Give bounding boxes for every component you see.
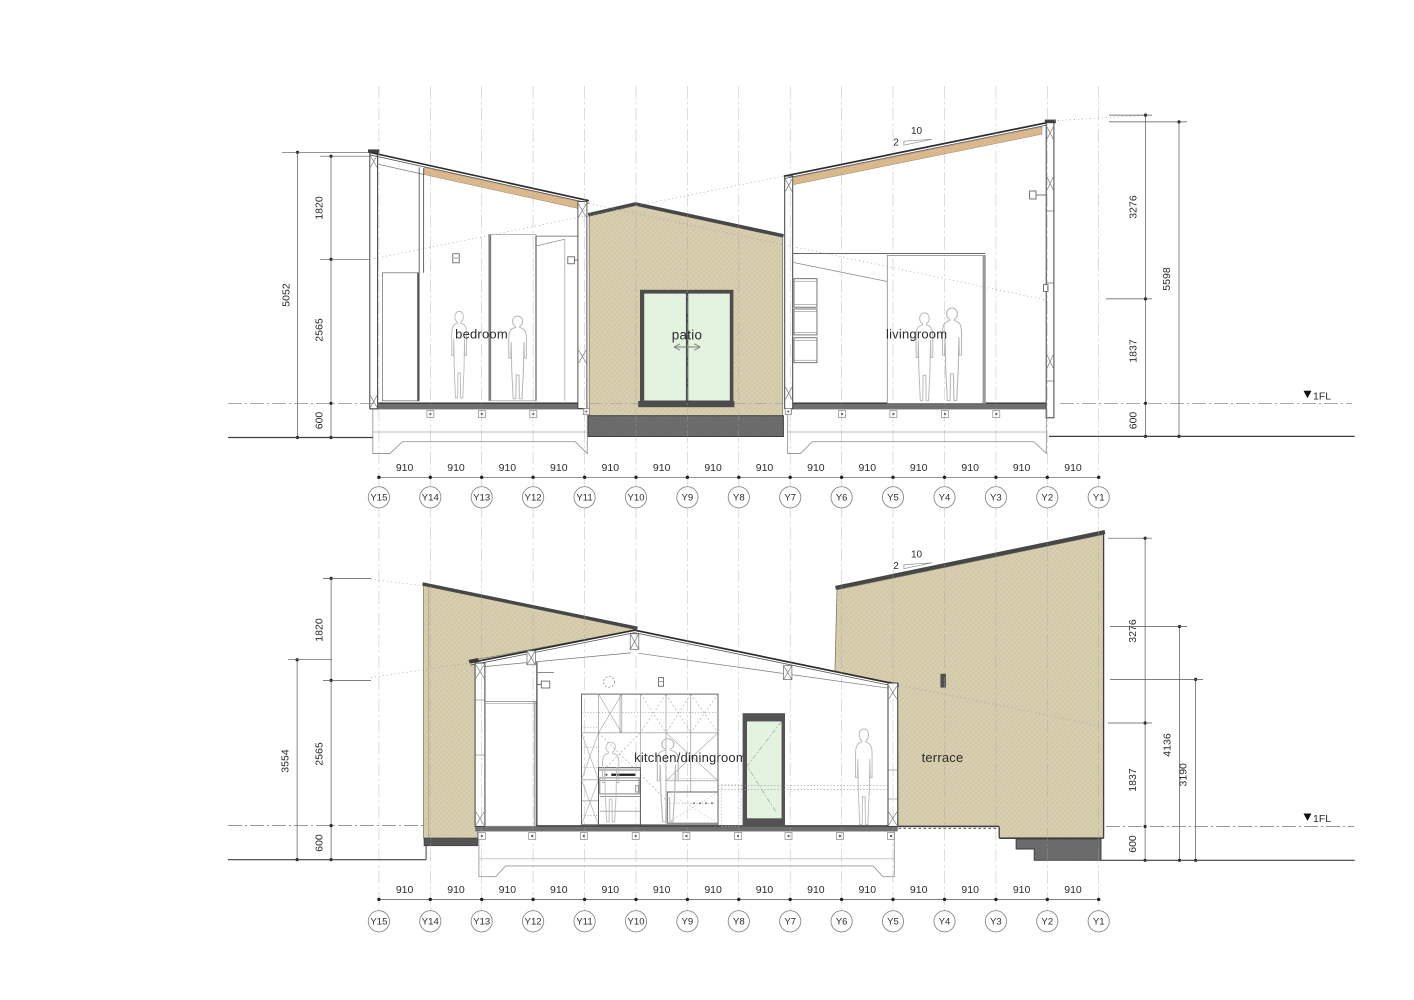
svg-text:910: 910 [653, 462, 671, 474]
svg-text:livingroom: livingroom [886, 327, 947, 342]
svg-text:1837: 1837 [1128, 339, 1140, 363]
svg-text:910: 910 [447, 462, 465, 474]
svg-text:Y12: Y12 [525, 917, 542, 928]
svg-text:Y3: Y3 [990, 493, 1002, 504]
svg-text:Y8: Y8 [733, 917, 745, 928]
svg-text:5598: 5598 [1161, 267, 1173, 291]
svg-text:1FL: 1FL [1313, 813, 1331, 825]
svg-text:Y6: Y6 [836, 917, 848, 928]
svg-text:2565: 2565 [313, 742, 325, 766]
svg-text:910: 910 [1013, 462, 1031, 474]
svg-text:910: 910 [910, 462, 928, 474]
svg-text:910: 910 [1013, 884, 1031, 896]
svg-text:600: 600 [1127, 835, 1139, 853]
svg-text:1FL: 1FL [1313, 390, 1331, 402]
svg-text:910: 910 [807, 884, 825, 896]
svg-text:kitchen/diningroom: kitchen/diningroom [634, 750, 747, 765]
svg-text:5052: 5052 [281, 283, 293, 307]
svg-text:3554: 3554 [280, 749, 292, 773]
svg-text:terrace: terrace [922, 750, 964, 765]
svg-text:910: 910 [602, 884, 620, 896]
svg-text:Y9: Y9 [682, 917, 694, 928]
svg-text:Y2: Y2 [1041, 493, 1053, 504]
svg-text:600: 600 [1128, 412, 1140, 430]
svg-text:10: 10 [911, 550, 923, 561]
svg-text:1820: 1820 [314, 196, 326, 220]
svg-text:Y8: Y8 [733, 493, 745, 504]
svg-text:Y13: Y13 [473, 493, 490, 504]
svg-text:910: 910 [396, 462, 414, 474]
svg-text:910: 910 [859, 884, 877, 896]
svg-text:10: 10 [911, 126, 923, 137]
svg-text:910: 910 [550, 462, 568, 474]
svg-text:600: 600 [313, 834, 325, 852]
svg-text:910: 910 [756, 462, 774, 474]
svg-text:Y13: Y13 [473, 917, 490, 928]
svg-text:910: 910 [756, 884, 774, 896]
svg-text:Y4: Y4 [939, 917, 951, 928]
svg-text:910: 910 [910, 884, 928, 896]
svg-text:910: 910 [1064, 462, 1082, 474]
svg-text:Y7: Y7 [784, 493, 796, 504]
svg-text:Y12: Y12 [525, 493, 542, 504]
svg-text:910: 910 [961, 884, 979, 896]
svg-text:Y11: Y11 [576, 917, 592, 928]
svg-text:910: 910 [1064, 884, 1082, 896]
svg-text:patio: patio [672, 327, 703, 342]
svg-text:Y10: Y10 [627, 917, 644, 928]
svg-text:Y2: Y2 [1041, 917, 1053, 928]
svg-text:910: 910 [961, 462, 979, 474]
svg-text:2: 2 [893, 561, 899, 572]
svg-text:Y4: Y4 [939, 493, 951, 504]
svg-text:910: 910 [807, 462, 825, 474]
svg-text:Y15: Y15 [370, 493, 387, 504]
svg-text:Y14: Y14 [422, 917, 440, 928]
svg-text:1837: 1837 [1127, 768, 1139, 792]
svg-text:Y3: Y3 [990, 917, 1002, 928]
svg-text:Y5: Y5 [887, 917, 899, 928]
svg-text:910: 910 [396, 884, 414, 896]
svg-text:3276: 3276 [1128, 195, 1140, 219]
svg-text:Y11: Y11 [576, 493, 592, 504]
svg-text:2: 2 [893, 138, 899, 149]
svg-text:910: 910 [653, 884, 671, 896]
svg-text:910: 910 [499, 884, 517, 896]
svg-text:1820: 1820 [313, 618, 325, 642]
svg-text:Y14: Y14 [422, 493, 440, 504]
svg-text:Y7: Y7 [784, 917, 796, 928]
svg-text:Y15: Y15 [370, 917, 387, 928]
svg-text:2565: 2565 [314, 318, 326, 342]
svg-text:Y10: Y10 [627, 493, 644, 504]
svg-text:3276: 3276 [1127, 619, 1139, 643]
svg-text:910: 910 [859, 462, 877, 474]
svg-text:3190: 3190 [1178, 763, 1190, 787]
svg-text:600: 600 [314, 412, 326, 430]
svg-text:Y1: Y1 [1093, 917, 1105, 928]
svg-text:Y9: Y9 [682, 493, 694, 504]
svg-text:910: 910 [602, 462, 620, 474]
svg-text:910: 910 [704, 884, 722, 896]
svg-text:910: 910 [550, 884, 568, 896]
svg-text:4136: 4136 [1162, 733, 1174, 757]
svg-text:910: 910 [447, 884, 465, 896]
svg-text:910: 910 [499, 462, 517, 474]
svg-text:Y1: Y1 [1093, 493, 1105, 504]
svg-text:Y5: Y5 [887, 493, 899, 504]
svg-text:Y6: Y6 [836, 493, 848, 504]
svg-text:910: 910 [704, 462, 722, 474]
